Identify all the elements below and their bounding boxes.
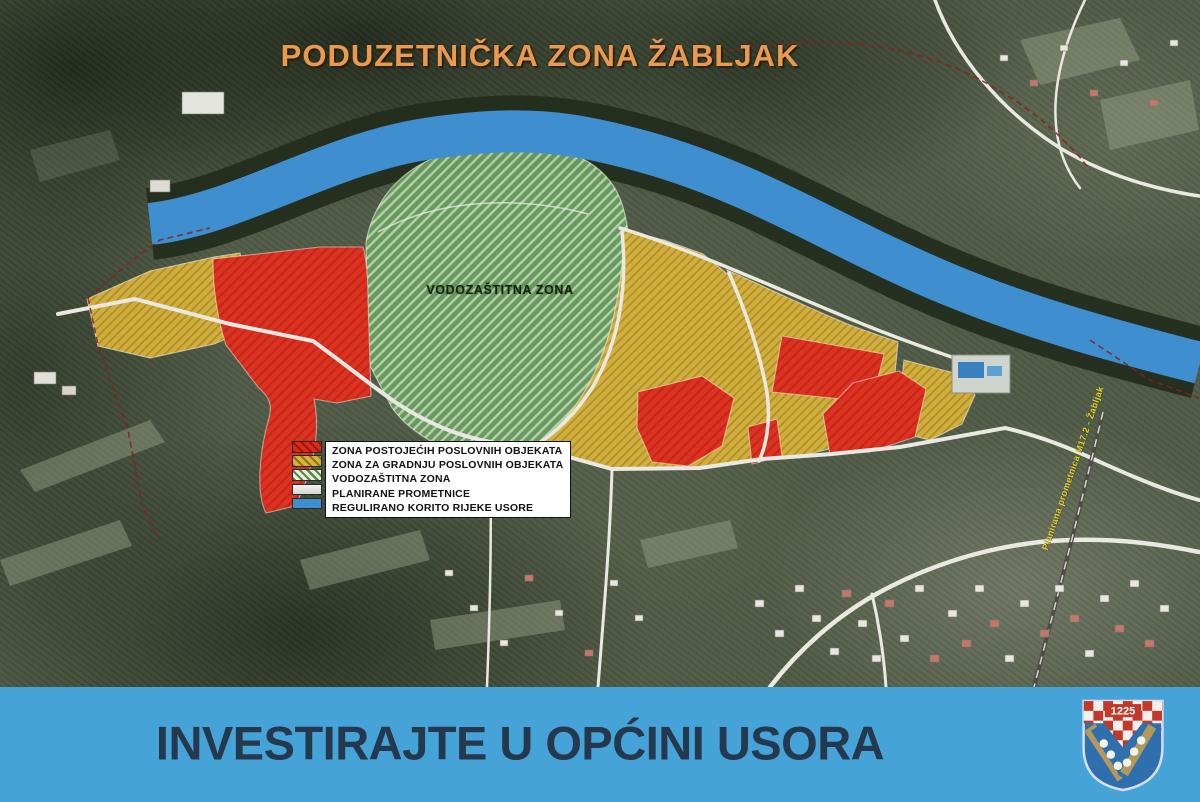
- legend-label-planned-roads: PLANIRANE PROMETNICE: [332, 487, 563, 501]
- legend-swatch-planned-roads: [292, 484, 322, 496]
- legend-swatch-water-protection: [292, 469, 322, 481]
- legend-label-construction-zone: ZONA ZA GRADNJU POSLOVNIH OBJEKATA: [332, 458, 563, 472]
- legend: ZONA POSTOJEĆIH POSLOVNIH OBJEKATA ZONA …: [292, 441, 571, 518]
- water-protection-zone-label: VODOZAŠTITNA ZONA: [400, 283, 600, 297]
- legend-swatch-existing-zone: [292, 441, 322, 453]
- usora-coat-of-arms: 1225: [1077, 695, 1169, 794]
- legend-label-water-protection: VODOZAŠTITNA ZONA: [332, 472, 563, 486]
- legend-label-river: REGULIRANO KORITO RIJEKE USORE: [332, 501, 563, 515]
- sports-complex: [952, 355, 1010, 393]
- bottom-banner: INVESTIRAJTE U OPĆINI USORA 1225: [0, 687, 1200, 802]
- legend-swatch-river: [292, 498, 322, 510]
- investment-poster: PODUZETNIČKA ZONA ŽABLJAK VODOZAŠTITNA Z…: [0, 0, 1200, 802]
- map-title: PODUZETNIČKA ZONA ŽABLJAK: [0, 38, 1080, 74]
- map-graphic: [0, 0, 1200, 687]
- aerial-map: PODUZETNIČKA ZONA ŽABLJAK VODOZAŠTITNA Z…: [0, 0, 1200, 687]
- legend-swatches: [292, 441, 322, 518]
- legend-box: ZONA POSTOJEĆIH POSLOVNIH OBJEKATA ZONA …: [325, 441, 571, 518]
- shield-year: 1225: [1111, 706, 1136, 718]
- banner-slogan: INVESTIRAJTE U OPĆINI USORA: [0, 715, 1040, 770]
- legend-swatch-construction-zone: [292, 455, 322, 467]
- legend-label-existing-zone: ZONA POSTOJEĆIH POSLOVNIH OBJEKATA: [332, 444, 563, 458]
